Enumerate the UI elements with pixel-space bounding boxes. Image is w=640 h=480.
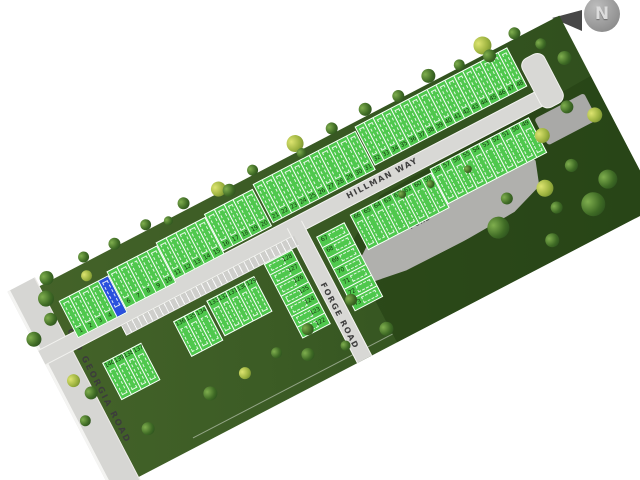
tree-icon	[139, 420, 157, 438]
tree-icon	[175, 195, 191, 211]
tree-icon	[75, 249, 90, 264]
tree-icon	[506, 25, 522, 41]
tree-icon	[268, 345, 283, 360]
tree-icon	[162, 214, 174, 226]
tree-icon	[37, 269, 56, 288]
compass-north-label: N	[595, 4, 609, 24]
tree-icon	[106, 236, 122, 252]
lot-number: 31	[363, 163, 374, 173]
block-137-140: 140139138137	[102, 343, 160, 401]
site-plan-canvas: N OLD GEORGIA ROAD PRIVATE DETENTION PON…	[0, 0, 640, 480]
tree-icon	[78, 268, 93, 283]
tree-icon	[298, 345, 316, 363]
tree-icon	[419, 66, 438, 85]
tree-icon	[138, 217, 153, 232]
lot-number: 122	[315, 317, 327, 327]
compass-circle-icon: N	[584, 0, 620, 32]
tree-icon	[324, 120, 340, 136]
tree-icon	[244, 163, 259, 178]
lot-number: 48	[515, 80, 526, 90]
lot-number: 20	[259, 219, 270, 229]
tree-icon	[201, 384, 220, 403]
tree-icon	[237, 365, 253, 381]
site-plan: OLD GEORGIA ROAD PRIVATE DETENTION POND …	[36, 16, 640, 479]
tree-icon	[356, 100, 374, 118]
tree-icon	[555, 49, 574, 68]
tree-icon	[533, 36, 548, 51]
